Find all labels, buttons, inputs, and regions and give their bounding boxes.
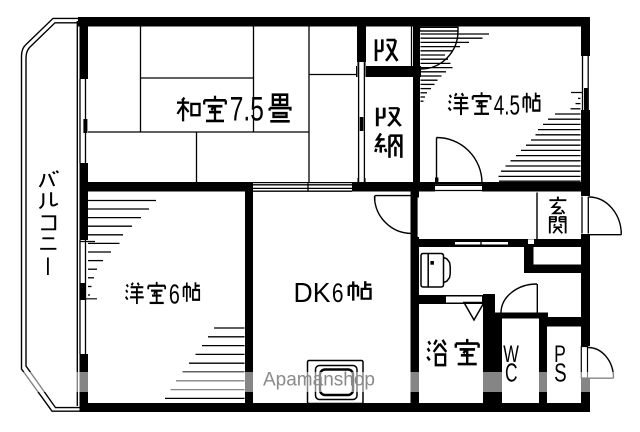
svg-text:Apamanshop: Apamanshop [263,370,375,391]
svg-text:DK: DK [294,277,331,308]
svg-text:6: 6 [332,278,344,308]
svg-text:7.5: 7.5 [230,91,264,129]
svg-text:6: 6 [169,279,180,310]
svg-text:S: S [554,357,567,387]
svg-text:C: C [505,358,518,388]
svg-text:4.5: 4.5 [494,90,520,121]
